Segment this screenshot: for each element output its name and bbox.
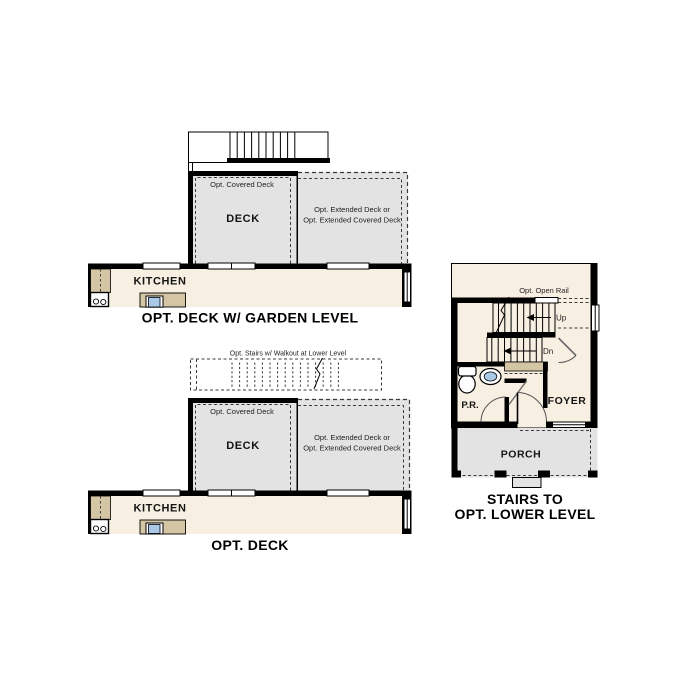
sink-icon	[480, 369, 501, 385]
plan-opt-deck: Opt. Stairs w/ Walkout at Lower Level Op…	[88, 351, 412, 554]
opt-stairs-label: Opt. Stairs w/ Walkout at Lower Level	[230, 351, 347, 358]
foyer-label: FOYER	[548, 395, 587, 407]
covered-deck-label: Opt. Covered Deck	[210, 180, 274, 189]
plan-title-opt-deck: OPT. DECK	[211, 537, 288, 553]
covered-deck-area: Opt. Covered Deck DECK	[188, 398, 298, 491]
side-window	[404, 499, 411, 529]
plan-title-garden-level: OPT. DECK W/ GARDEN LEVEL	[142, 310, 359, 326]
side-window	[404, 272, 411, 302]
kitchen-label: KITCHEN	[133, 276, 186, 288]
open-rail-label: Opt. Open Rail	[519, 286, 569, 295]
extended-deck-label-1: Opt. Extended Deck or	[314, 205, 390, 214]
covered-deck-area: Opt. Covered Deck DECK	[188, 171, 298, 264]
deck-door	[208, 490, 255, 496]
up-label: Up	[556, 314, 567, 323]
porch-step	[513, 478, 542, 488]
pantry-counter	[91, 496, 111, 520]
plan-title-lower-level-2: OPT. LOWER LEVEL	[455, 506, 596, 522]
island-counter	[140, 520, 186, 534]
kitchen-window	[327, 490, 369, 496]
toilet-icon	[459, 367, 477, 394]
deck-door	[208, 263, 255, 269]
powder-room-label: P.R.	[461, 400, 478, 411]
plan-opt-deck-garden-level: Opt. Covered Deck DECK Opt. Extended Dec…	[88, 132, 412, 326]
floorplan-sheet: Opt. Covered Deck DECK Opt. Extended Dec…	[0, 0, 687, 687]
porch-window	[553, 422, 586, 428]
plan-stairs-lower-level: Opt. Open Rail Up Dn	[452, 264, 600, 523]
covered-deck-label: Opt. Covered Deck	[210, 407, 274, 416]
cooktop-icon	[91, 293, 109, 307]
down-label: Dn	[543, 347, 553, 356]
porch-label: PORCH	[501, 449, 541, 461]
extended-deck-area: Opt. Extended Deck or Opt. Extended Cove…	[298, 399, 410, 491]
deck-label: DECK	[226, 213, 260, 225]
extended-deck-label-2: Opt. Extended Covered Deck	[303, 444, 401, 453]
extended-deck-label-1: Opt. Extended Deck or	[314, 433, 390, 442]
foyer-window	[592, 305, 600, 331]
extended-deck-label-2: Opt. Extended Covered Deck	[303, 216, 401, 225]
kitchen-window	[143, 263, 180, 269]
cooktop-icon	[91, 520, 109, 534]
plan-title-lower-level-1: STAIRS TO	[487, 491, 563, 507]
opt-stairs-area: Opt. Stairs w/ Walkout at Lower Level	[191, 351, 382, 391]
extended-deck-area: Opt. Extended Deck or Opt. Extended Cove…	[298, 172, 408, 264]
kitchen-area: KITCHEN	[88, 263, 412, 307]
pantry-counter	[91, 269, 111, 293]
kitchen-label: KITCHEN	[133, 503, 186, 515]
kitchen-area: KITCHEN	[88, 490, 412, 534]
deck-label: DECK	[226, 440, 260, 452]
floorplan-canvas: Opt. Covered Deck DECK Opt. Extended Dec…	[0, 0, 687, 687]
deck-stairs	[189, 132, 331, 171]
kitchen-window	[143, 490, 180, 496]
island-counter	[140, 293, 186, 307]
kitchen-window	[327, 263, 369, 269]
porch-area: PORCH	[452, 428, 598, 488]
